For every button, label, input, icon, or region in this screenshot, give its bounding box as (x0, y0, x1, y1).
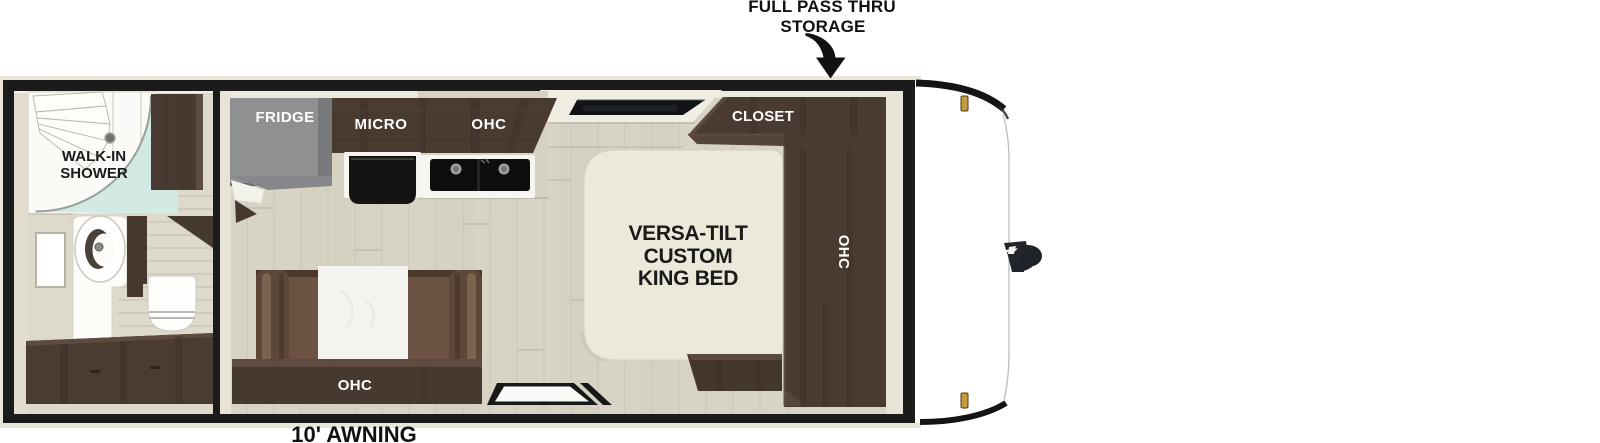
svg-text:FULL PASS THRU: FULL PASS THRU (748, 0, 896, 16)
svg-text:MICRO: MICRO (355, 116, 408, 133)
svg-text:SHOWER: SHOWER (60, 165, 128, 182)
svg-text:STORAGE: STORAGE (780, 17, 865, 36)
svg-text:CUSTOM: CUSTOM (644, 245, 733, 268)
svg-text:KING BED: KING BED (638, 267, 738, 290)
svg-text:10' AWNING: 10' AWNING (291, 422, 416, 443)
svg-text:WALK-IN: WALK-IN (62, 148, 126, 165)
svg-text:OHC: OHC (471, 116, 506, 133)
svg-text:OHC: OHC (338, 377, 373, 394)
svg-text:OHC: OHC (835, 235, 852, 270)
svg-text:VERSA-TILT: VERSA-TILT (628, 222, 748, 245)
svg-text:FRIDGE: FRIDGE (255, 109, 314, 126)
svg-text:CLOSET: CLOSET (732, 108, 794, 125)
